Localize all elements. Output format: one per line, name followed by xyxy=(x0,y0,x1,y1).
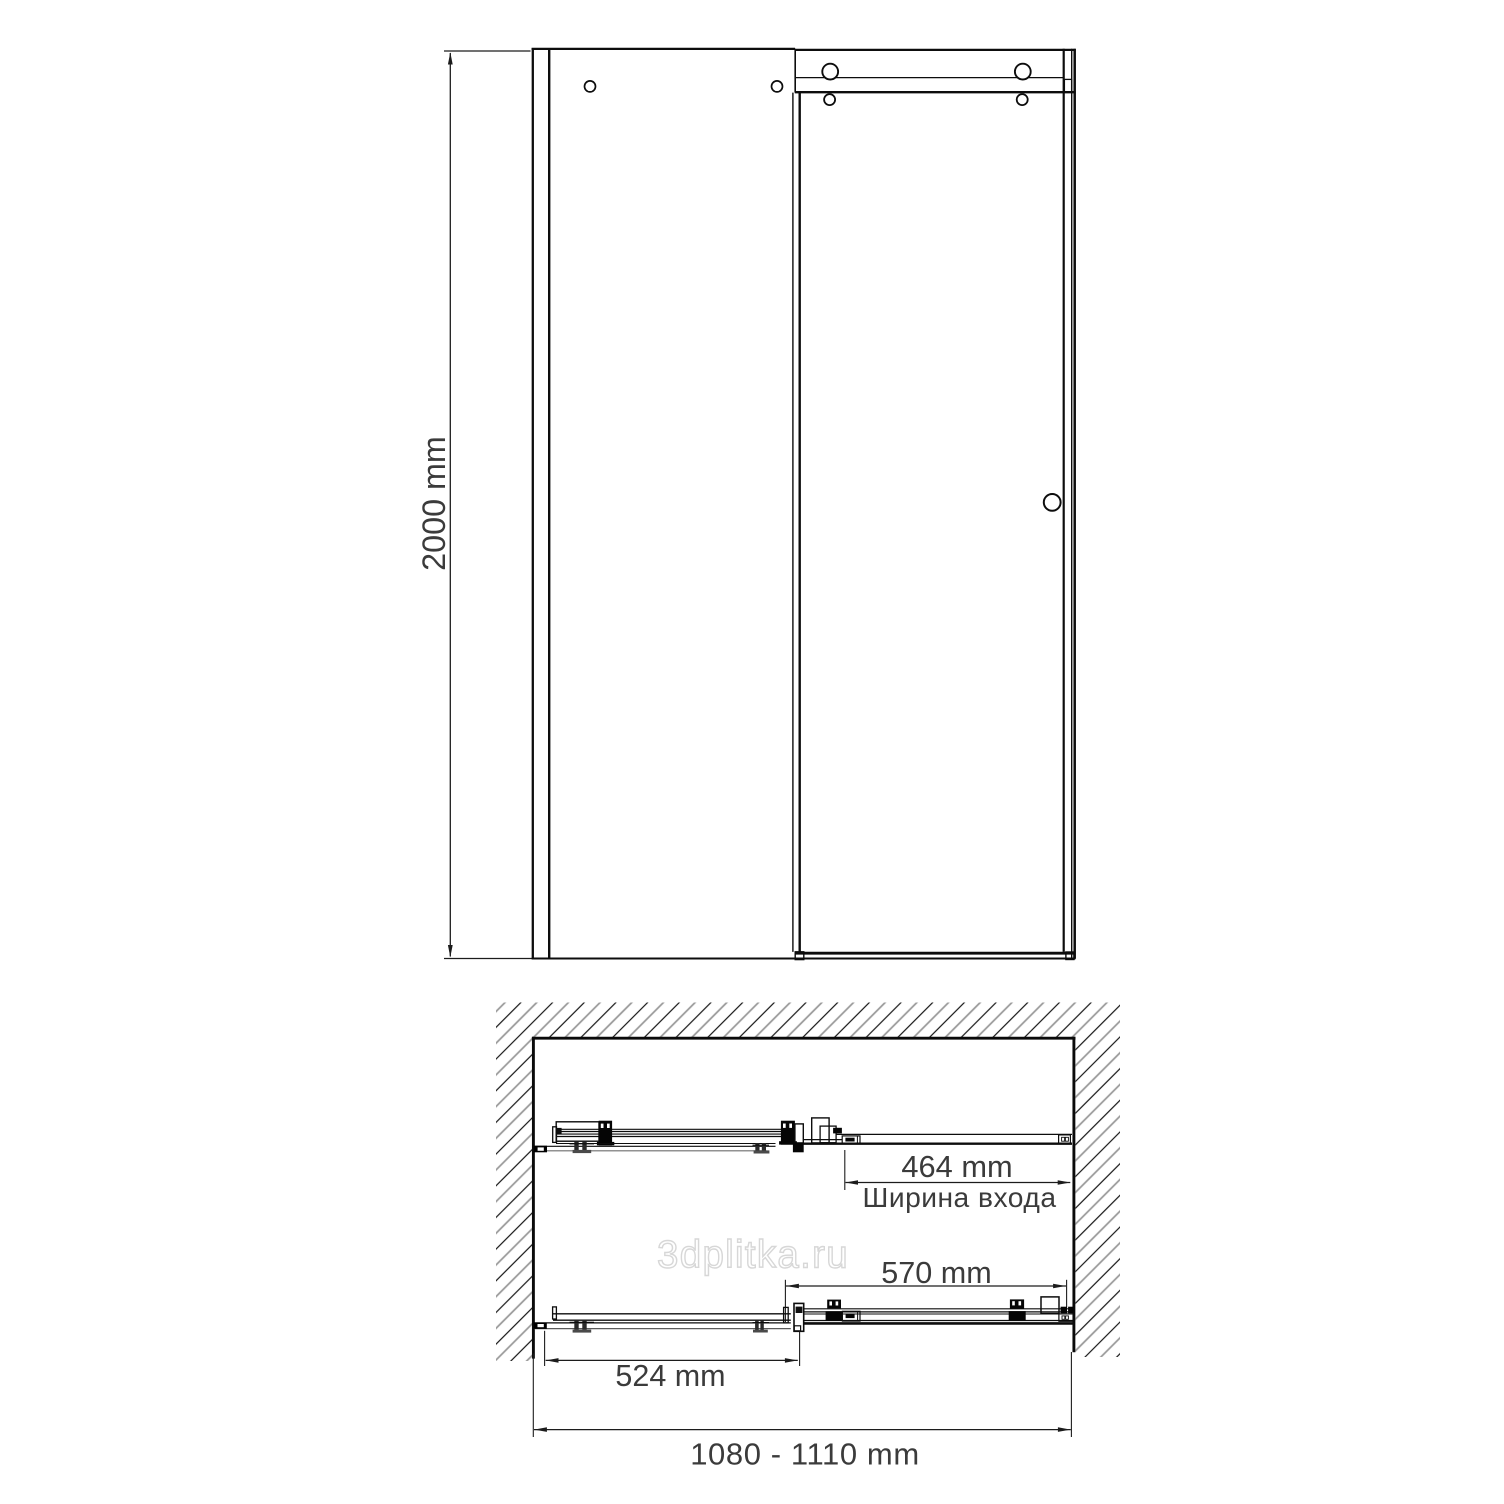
svg-text:Ширина входа: Ширина входа xyxy=(862,1181,1056,1213)
svg-text:464 mm: 464 mm xyxy=(901,1149,1012,1184)
svg-text:3dplitka.ru: 3dplitka.ru xyxy=(657,1234,849,1277)
svg-text:570 mm: 570 mm xyxy=(881,1256,992,1290)
svg-text:1080 - 1110 mm: 1080 - 1110 mm xyxy=(690,1437,920,1472)
svg-text:524 mm: 524 mm xyxy=(615,1359,725,1393)
svg-text:2000 mm: 2000 mm xyxy=(416,436,452,571)
